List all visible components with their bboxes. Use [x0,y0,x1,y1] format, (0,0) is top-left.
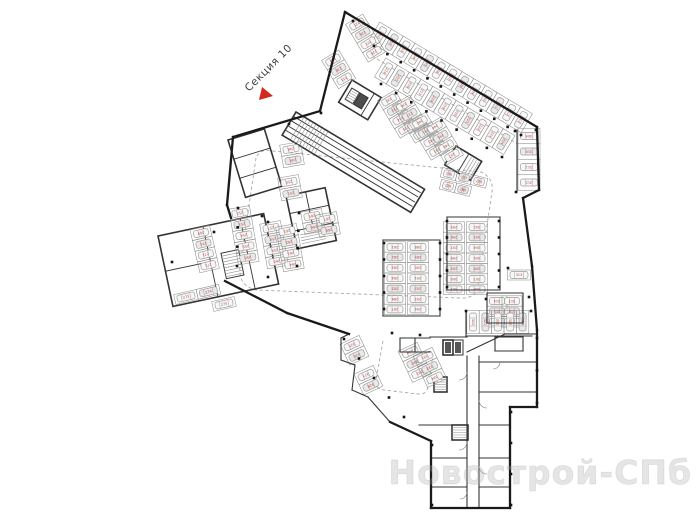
column-dot [530,310,533,313]
column-dot [297,229,300,232]
column-dot [485,298,488,301]
column-dot [403,416,406,419]
svg-text:318: 318 [509,309,515,313]
column-dot [267,276,270,279]
column-dot [236,245,239,248]
column-dot [236,265,239,268]
svg-text:291: 291 [415,276,421,280]
column-dot [237,207,240,210]
svg-text:292: 292 [415,286,421,290]
column-dot [343,338,346,341]
column-dot [440,85,443,88]
svg-text:285: 285 [392,286,398,290]
column-dot [395,92,398,95]
column-dot [507,267,510,270]
svg-text:281: 281 [392,245,398,249]
svg-text:290: 290 [415,266,421,270]
svg-text:286: 286 [392,297,398,301]
svg-text:306: 306 [474,266,480,270]
svg-text:311: 311 [526,165,532,169]
watermark-text: Новострой-СПб [388,453,692,492]
column-dot [391,332,394,335]
column-dot [453,93,456,96]
column-dot [528,296,531,299]
svg-text:313: 313 [516,273,522,277]
column-dot [520,134,523,137]
column-dot [439,242,442,245]
svg-text:305: 305 [474,256,480,260]
column-dot [296,265,299,268]
svg-text:299: 299 [451,266,457,270]
column-dot [386,53,389,56]
column-dot [446,286,449,289]
svg-text:293: 293 [415,297,421,301]
svg-text:294: 294 [415,307,421,311]
column-dot [510,504,513,507]
column-dot [425,110,428,113]
svg-text:302: 302 [474,225,480,229]
column-dot [446,236,449,239]
svg-text:300: 300 [451,277,457,281]
column-dot [498,236,501,239]
column-dot [506,126,509,129]
column-dot [486,147,489,150]
svg-text:320: 320 [471,319,475,325]
column-dot [510,442,513,445]
column-dot [296,247,299,250]
column-dot [439,258,442,261]
column-dot [320,112,323,115]
column-dot [480,109,483,112]
column-dot [383,308,386,311]
column-dot [446,220,449,223]
column-dot [267,221,270,224]
column-dot [439,291,442,294]
svg-text:314: 314 [494,299,500,303]
svg-text:298: 298 [451,256,457,260]
column-dot [373,377,376,380]
column-dot [431,444,434,447]
svg-text:307: 307 [474,277,480,281]
column-dot [419,334,422,337]
elevator-core [443,340,463,355]
column-dot [383,291,386,294]
column-dot [358,357,361,360]
svg-text:288: 288 [415,245,421,249]
column-dot [535,129,538,132]
column-dot [466,101,469,104]
column-dot [352,20,355,23]
floor-plan-drawing: 2012022032042052062072082092102112122132… [0,0,700,525]
column-dot [383,275,386,278]
svg-text:284: 284 [392,276,398,280]
svg-text:310: 310 [526,149,532,153]
svg-text:308: 308 [474,287,480,291]
column-dot [431,504,434,507]
column-dot [455,128,458,131]
column-dot [514,130,517,133]
column-dot [383,242,386,245]
svg-text:315: 315 [494,309,500,313]
parking-stall: 313 [508,270,531,280]
column-dot [498,269,501,272]
column-dot [373,45,376,48]
svg-text:304: 304 [474,246,480,250]
column-dot [413,69,416,72]
svg-text:322: 322 [496,319,500,325]
column-dot [440,119,443,122]
svg-text:283: 283 [392,266,398,270]
svg-text:301: 301 [451,287,457,291]
column-dot [515,191,518,194]
column-dot [446,253,449,256]
svg-text:289: 289 [415,255,421,259]
column-dot [498,220,501,223]
column-dot [236,226,239,229]
column-dot [213,231,216,234]
svg-text:317: 317 [509,299,515,303]
column-dot [465,310,468,313]
column-dot [536,337,539,340]
column-dot [399,61,402,64]
svg-text:282: 282 [392,255,398,259]
svg-text:324: 324 [520,319,524,325]
column-dot [298,212,301,215]
column-dot [510,411,513,414]
column-dot [470,137,473,140]
column-dot [439,308,442,311]
svg-text:323: 323 [508,319,512,325]
column-dot [388,396,391,399]
floor-plan-page: 2012022032042052062072082092102112122132… [0,0,700,525]
svg-text:297: 297 [451,246,457,250]
column-dot [171,261,174,264]
column-dot [498,253,501,256]
column-dot [410,101,413,104]
column-dot [536,369,539,372]
column-dot [501,156,504,159]
column-dot [288,123,291,126]
column-dot [426,77,429,80]
svg-text:296: 296 [451,235,457,239]
column-dot [446,269,449,272]
column-dot [380,83,383,86]
svg-text:287: 287 [392,307,398,311]
svg-text:309: 309 [526,134,532,138]
column-dot [383,258,386,261]
svg-text:312: 312 [526,180,532,184]
column-dot [536,402,539,405]
svg-text:303: 303 [474,235,480,239]
column-dot [439,275,442,278]
stair-core-2 [452,425,468,440]
column-dot [498,286,501,289]
column-dot [261,215,264,218]
svg-text:295: 295 [451,225,457,229]
column-dot [493,118,496,121]
